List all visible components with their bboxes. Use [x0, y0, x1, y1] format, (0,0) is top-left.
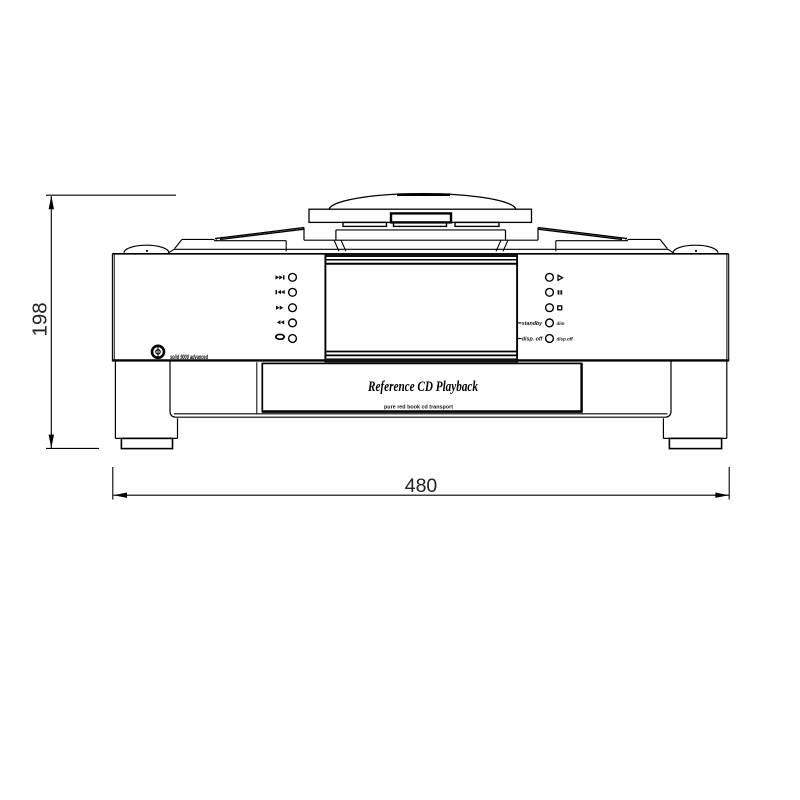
svg-text:198: 198	[29, 302, 52, 336]
svg-text:solid 9000 advanced: solid 9000 advanced	[170, 355, 208, 361]
svg-text:480: 480	[405, 475, 438, 497]
svg-text:pure red book cd transport: pure red book cd transport	[384, 405, 453, 411]
svg-text:standby: standby	[522, 321, 543, 327]
svg-text:Reference CD Playback: Reference CD Playback	[367, 379, 478, 395]
svg-text:dim: dim	[557, 321, 565, 326]
svg-text:disp.off: disp.off	[557, 337, 574, 342]
svg-text:disp. off: disp. off	[522, 337, 544, 343]
